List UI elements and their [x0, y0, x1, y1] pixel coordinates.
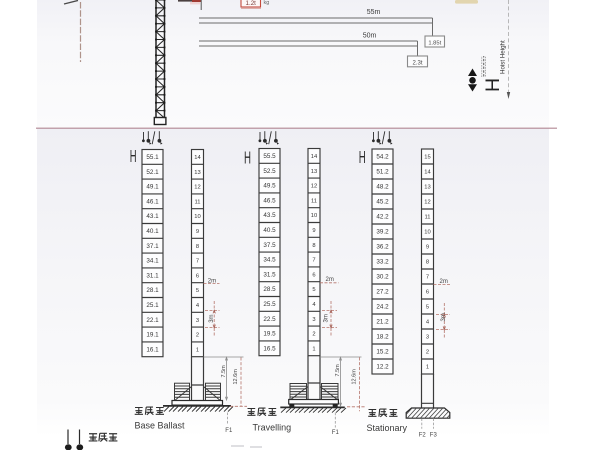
svg-text:Base Ballast: Base Ballast — [135, 420, 186, 430]
svg-text:25.1: 25.1 — [146, 302, 159, 309]
svg-text:5: 5 — [312, 287, 315, 293]
svg-text:48.2: 48.2 — [376, 184, 389, 191]
svg-text:13: 13 — [424, 185, 430, 191]
svg-text:52.1: 52.1 — [146, 169, 159, 176]
svg-text:16.1: 16.1 — [146, 346, 159, 353]
svg-text:5: 5 — [426, 305, 429, 311]
svg-text:Travelling: Travelling — [253, 422, 292, 432]
svg-text:F1: F1 — [332, 430, 340, 436]
svg-text:10: 10 — [424, 230, 430, 236]
svg-text:9: 9 — [426, 245, 429, 251]
svg-text:2m: 2m — [326, 277, 334, 283]
svg-text:2: 2 — [196, 333, 199, 339]
svg-text:51.2: 51.2 — [376, 169, 389, 176]
svg-text:9: 9 — [196, 229, 199, 235]
svg-text:50m: 50m — [363, 33, 377, 40]
svg-text:31.5: 31.5 — [263, 271, 276, 278]
svg-text:15.2: 15.2 — [376, 349, 389, 356]
svg-text:8: 8 — [426, 260, 429, 266]
svg-text:2: 2 — [312, 332, 315, 338]
svg-text:39.2: 39.2 — [376, 229, 389, 236]
svg-text:kg: kg — [264, 0, 270, 6]
svg-text:2m: 2m — [440, 279, 448, 285]
svg-text:15: 15 — [424, 155, 430, 161]
svg-text:55.1: 55.1 — [146, 154, 159, 161]
svg-text:3: 3 — [312, 317, 315, 323]
svg-text:3m: 3m — [441, 313, 447, 321]
svg-text:21.2: 21.2 — [376, 319, 389, 326]
svg-text:Stationary: Stationary — [367, 423, 408, 433]
svg-text:10: 10 — [194, 214, 200, 220]
svg-text:46.1: 46.1 — [146, 198, 159, 205]
svg-text:22.1: 22.1 — [146, 317, 159, 324]
svg-text:12: 12 — [424, 200, 430, 206]
svg-text:H: H — [359, 147, 366, 167]
svg-text:24.2: 24.2 — [376, 304, 389, 311]
svg-text:14: 14 — [194, 155, 201, 161]
svg-text:7.5m: 7.5m — [335, 364, 341, 377]
svg-text:H: H — [130, 146, 137, 166]
svg-text:3: 3 — [196, 318, 199, 324]
svg-text:40.1: 40.1 — [146, 228, 159, 235]
svg-text:Hoist Height: Hoist Height — [500, 40, 507, 74]
svg-text:49.1: 49.1 — [146, 184, 159, 191]
svg-text:12: 12 — [311, 184, 317, 190]
svg-text:34.1: 34.1 — [146, 258, 159, 265]
svg-text:49.5: 49.5 — [263, 183, 276, 190]
svg-text:12.6m: 12.6m — [233, 369, 239, 385]
svg-text:12.2: 12.2 — [376, 364, 389, 371]
svg-text:2: 2 — [426, 350, 429, 356]
svg-text:37.5: 37.5 — [263, 242, 276, 249]
svg-text:19.1: 19.1 — [146, 332, 159, 339]
svg-text:55.5: 55.5 — [263, 153, 276, 160]
svg-text:30.2: 30.2 — [376, 274, 389, 281]
svg-text:3: 3 — [426, 335, 429, 341]
svg-text:3m: 3m — [324, 314, 330, 322]
svg-text:22.5: 22.5 — [263, 316, 276, 323]
svg-text:F1: F1 — [225, 428, 233, 434]
svg-text:14: 14 — [311, 154, 318, 160]
svg-text:1: 1 — [196, 347, 199, 353]
svg-text:18.2: 18.2 — [376, 334, 389, 341]
svg-text:33.2: 33.2 — [376, 259, 389, 266]
svg-text:16.5: 16.5 — [263, 345, 276, 352]
svg-text:1: 1 — [312, 346, 315, 352]
svg-text:6: 6 — [426, 290, 429, 296]
svg-text:55m: 55m — [367, 9, 381, 16]
svg-text:28.5: 28.5 — [263, 286, 276, 293]
svg-text:F3: F3 — [430, 433, 438, 439]
svg-text:9: 9 — [312, 228, 315, 234]
svg-text:13: 13 — [311, 169, 317, 175]
svg-text:1.2t: 1.2t — [246, 0, 257, 7]
svg-text:27.2: 27.2 — [376, 289, 389, 296]
svg-text:43.1: 43.1 — [146, 213, 159, 220]
svg-text:6: 6 — [312, 272, 315, 278]
svg-text:7: 7 — [312, 258, 315, 264]
svg-text:12.6m: 12.6m — [351, 369, 357, 385]
svg-text:7: 7 — [426, 275, 429, 281]
svg-text:46.5: 46.5 — [263, 197, 276, 204]
svg-text:34.5: 34.5 — [263, 257, 276, 264]
svg-text:45.2: 45.2 — [376, 199, 389, 206]
svg-text:1: 1 — [426, 365, 429, 371]
svg-text:11: 11 — [194, 199, 200, 205]
svg-text:2m: 2m — [208, 278, 216, 284]
svg-text:54.2: 54.2 — [376, 154, 389, 161]
svg-text:F2: F2 — [419, 433, 427, 439]
svg-text:43.5: 43.5 — [263, 212, 276, 219]
svg-text:10: 10 — [311, 213, 317, 219]
svg-text:1.85t: 1.85t — [428, 40, 441, 46]
svg-text:37.1: 37.1 — [146, 243, 159, 250]
svg-text:3m: 3m — [209, 314, 215, 322]
svg-text:6: 6 — [196, 273, 199, 279]
svg-text:31.1: 31.1 — [146, 272, 159, 279]
svg-text:7.5m: 7.5m — [221, 365, 227, 378]
svg-text:14: 14 — [424, 170, 431, 176]
svg-text:5: 5 — [196, 288, 199, 294]
svg-text:13: 13 — [194, 170, 200, 176]
svg-text:36.2: 36.2 — [376, 244, 389, 251]
svg-text:H: H — [244, 148, 251, 168]
svg-text:12: 12 — [194, 185, 200, 191]
svg-text:52.5: 52.5 — [263, 168, 276, 175]
svg-text:7: 7 — [196, 259, 199, 265]
svg-text:11: 11 — [311, 198, 317, 204]
svg-text:42.2: 42.2 — [376, 214, 389, 221]
svg-text:40.5: 40.5 — [263, 227, 276, 234]
svg-text:8: 8 — [312, 243, 315, 249]
svg-text:11: 11 — [424, 215, 430, 221]
svg-text:28.1: 28.1 — [146, 287, 159, 294]
svg-text:8: 8 — [196, 244, 199, 250]
svg-text:2.3t: 2.3t — [412, 60, 422, 66]
svg-text:25.5: 25.5 — [263, 301, 276, 308]
svg-text:19.5: 19.5 — [263, 331, 276, 338]
svg-text:H: H — [482, 78, 504, 92]
